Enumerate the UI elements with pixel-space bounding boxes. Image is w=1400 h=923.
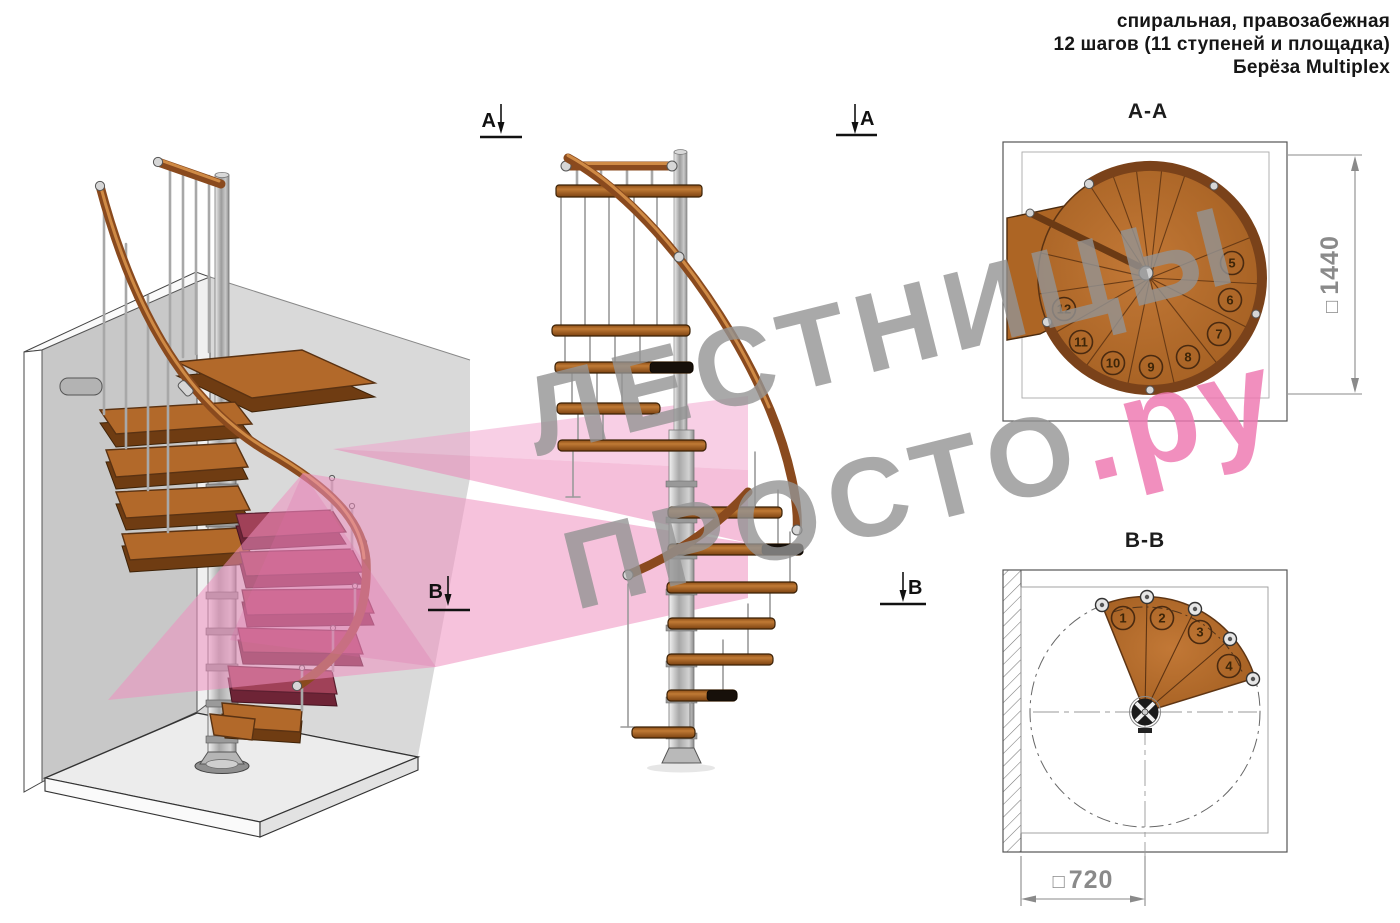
svg-text:9: 9 — [1147, 360, 1154, 375]
svg-text:1: 1 — [1119, 611, 1126, 626]
dimension-bb-text: □720 — [1053, 866, 1114, 894]
view-plan-aa: А-А 5 6 7 — [1003, 100, 1362, 421]
svg-text:8: 8 — [1184, 350, 1191, 365]
plan-bb-title: В-В — [1125, 529, 1165, 552]
staircase-technical-drawing: А А В В А-А — [0, 0, 1400, 923]
svg-text:11: 11 — [1074, 335, 1088, 350]
dimension-aa: □1440 — [1288, 155, 1362, 394]
marker-letter-a: А — [482, 110, 496, 132]
annotation-line-material: Берёза Multiplex — [1054, 56, 1390, 79]
marker-letter-b: В — [429, 581, 443, 603]
svg-text:3: 3 — [1196, 625, 1203, 640]
svg-text:5: 5 — [1228, 256, 1235, 271]
dimension-aa-text: □1440 — [1316, 235, 1344, 313]
svg-text:2: 2 — [1158, 611, 1165, 626]
annotation-line-steps: 12 шагов (11 ступеней и площадка) — [1054, 33, 1390, 56]
svg-text:7: 7 — [1215, 327, 1222, 342]
plan-aa-title: А-А — [1128, 100, 1168, 123]
dimension-bb: □720 — [1021, 856, 1145, 906]
section-marker-a-right: А — [836, 104, 877, 135]
section-marker-b-right: В — [880, 572, 926, 604]
wall-support-stub — [60, 378, 102, 395]
svg-text:6: 6 — [1226, 293, 1233, 308]
title-annotation: спиральная, правозабежная 12 шагов (11 с… — [1054, 10, 1390, 79]
svg-text:4: 4 — [1225, 659, 1233, 674]
marker-letter-b: В — [908, 577, 922, 599]
svg-text:10: 10 — [1106, 356, 1120, 371]
svg-text:12: 12 — [1057, 302, 1071, 317]
drawing-sheet: А А В В А-А — [0, 0, 1400, 923]
section-marker-a-left: А — [480, 104, 522, 137]
pole-base — [662, 748, 701, 763]
view-plan-bb: В-В — [1003, 529, 1287, 906]
marker-letter-a: А — [860, 108, 874, 130]
annotation-line-type: спиральная, правозабежная — [1054, 10, 1390, 33]
wall-hatch — [1003, 570, 1021, 852]
pole-top-plan — [1139, 266, 1153, 280]
